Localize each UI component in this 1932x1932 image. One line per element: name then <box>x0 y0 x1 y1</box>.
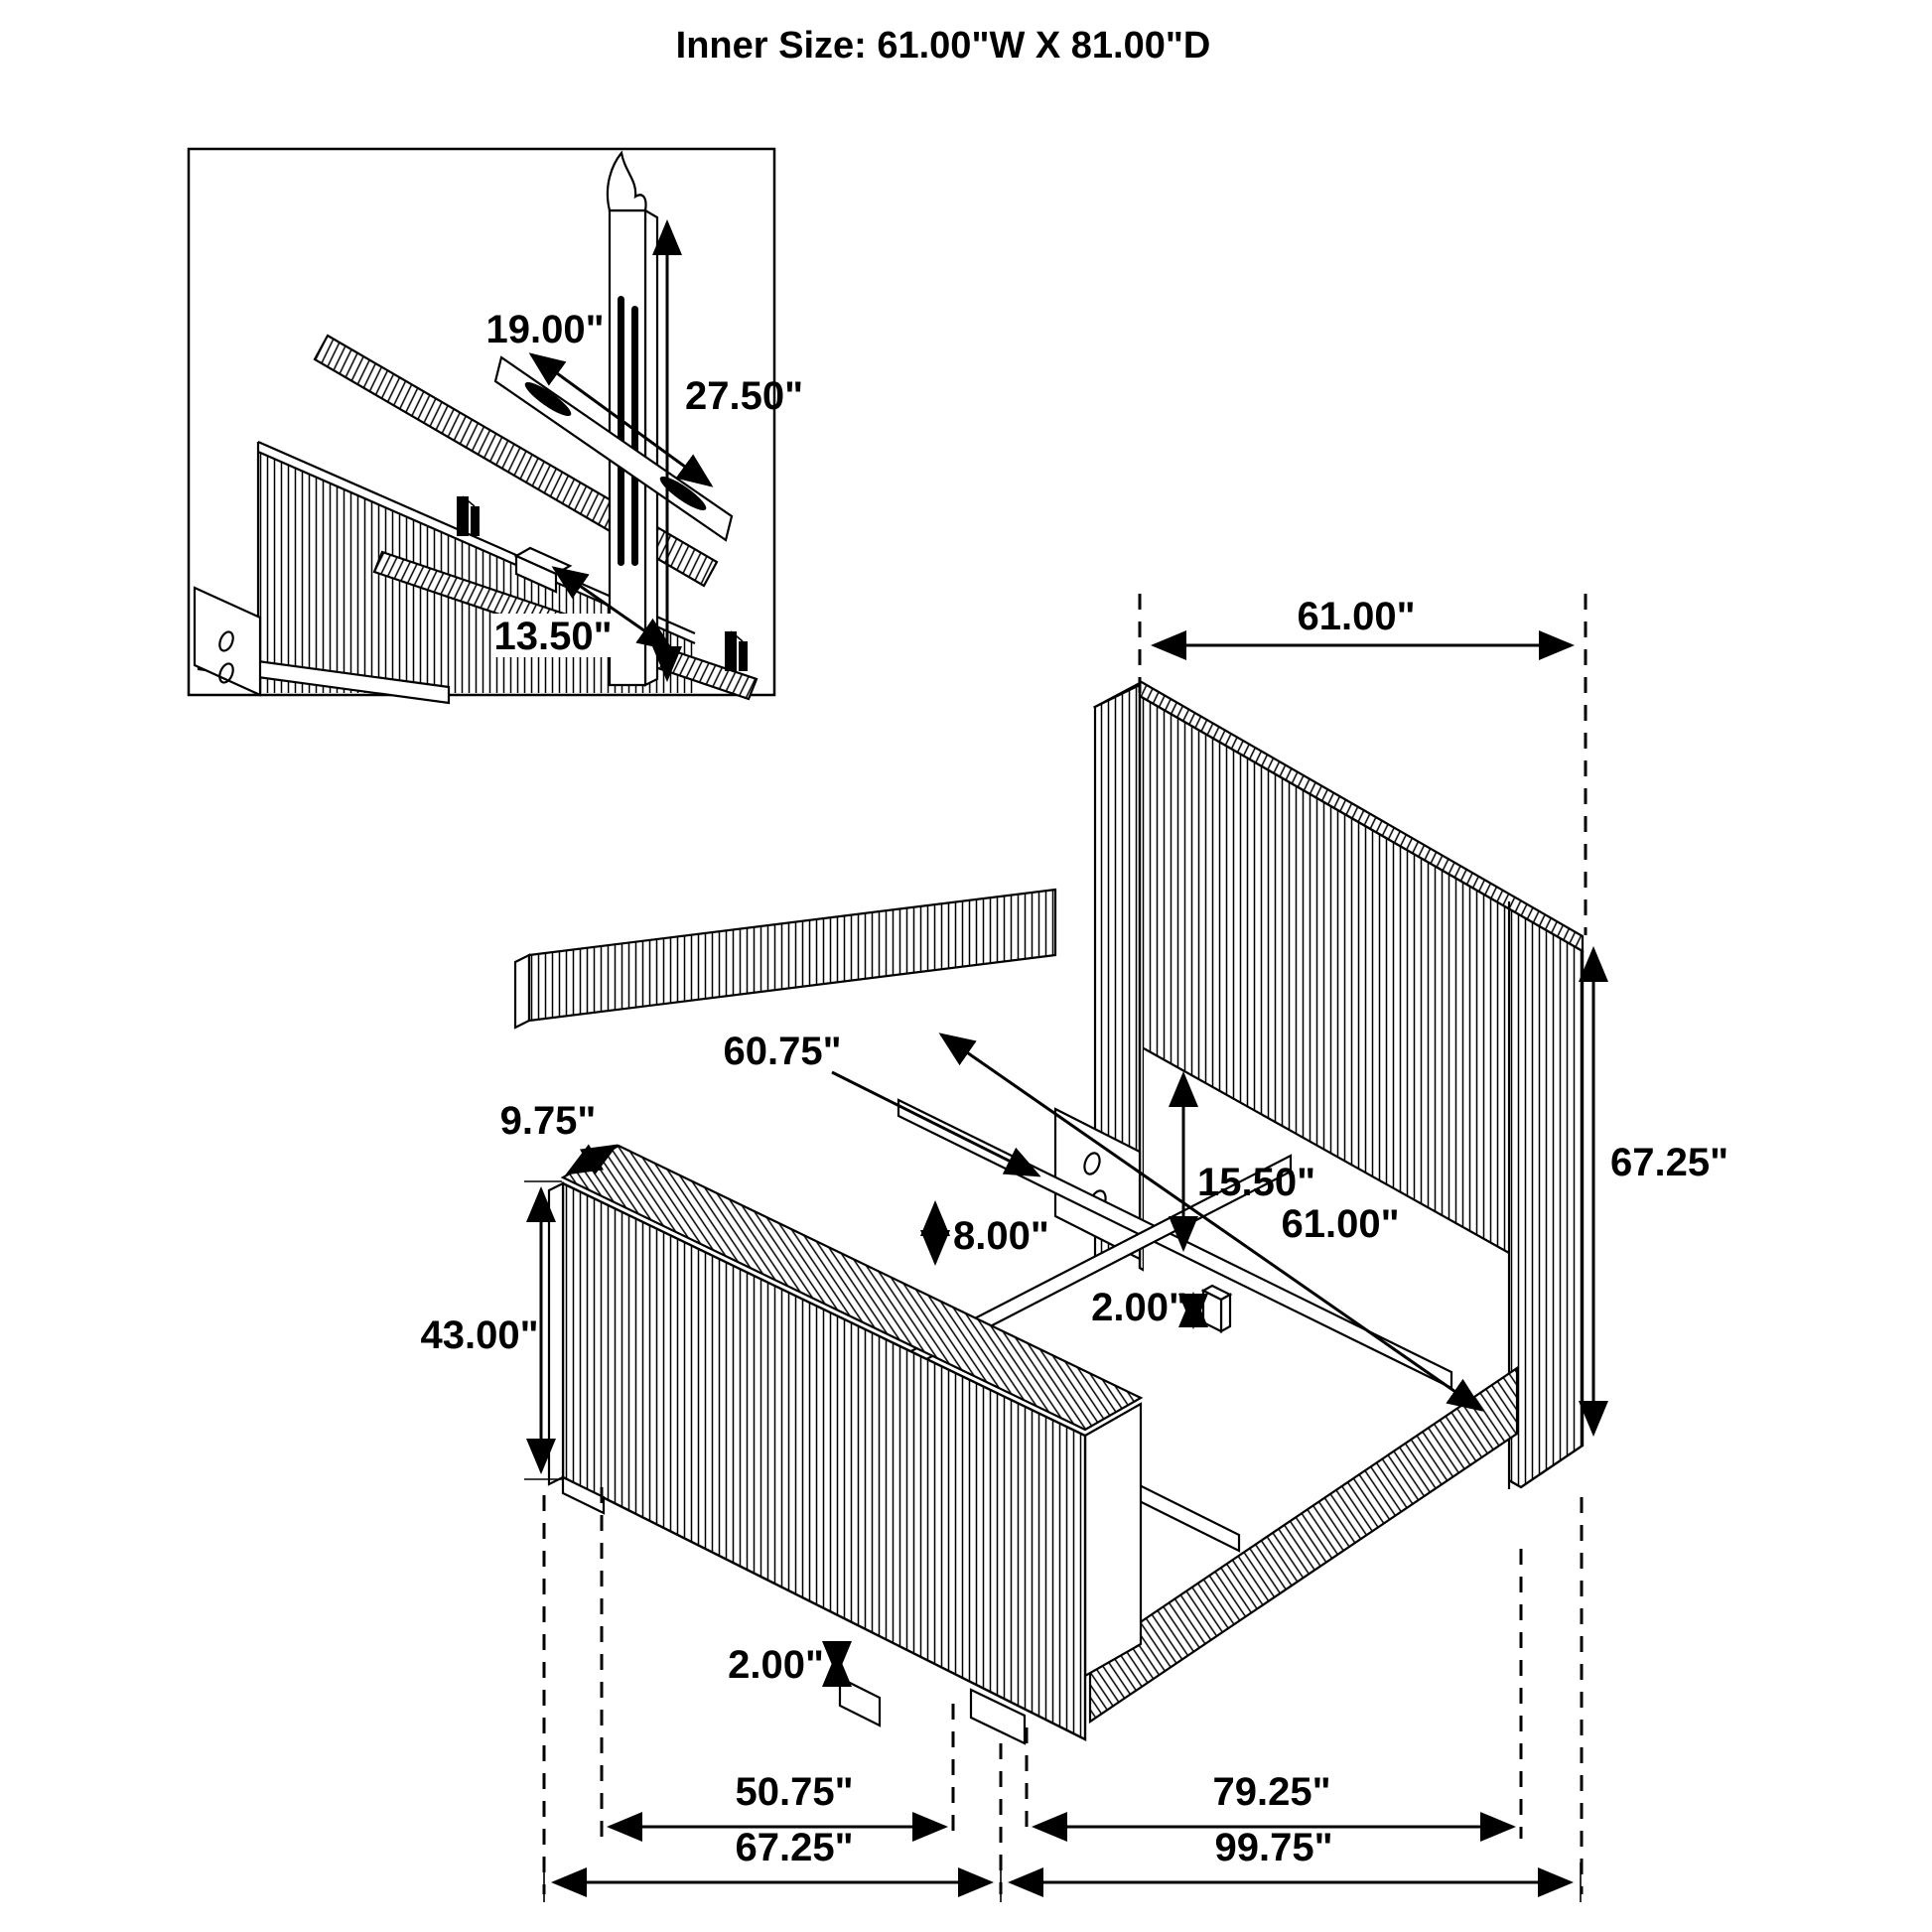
bed-dimension-diagram: Inner Size: 61.00"W X 81.00"D <box>0 0 1932 1932</box>
dim-label-rail-gap: 8.00" <box>953 1214 1049 1258</box>
bed-dimension-diagram-page: Inner Size: 61.00"W X 81.00"D <box>0 0 1932 1932</box>
footboard-center-leg <box>840 1678 880 1725</box>
dim-label-inner-width: 61.00" <box>1281 1202 1399 1246</box>
dim-label-slat-length: 60.75" <box>723 1030 841 1073</box>
dim-footboard-outer-width: 67.25" <box>544 1826 1581 1902</box>
dim-label-rail-length: 79.25" <box>1212 1770 1330 1814</box>
left-rail-end-cap <box>515 955 529 1028</box>
inset-detail-view: 19.00" 27.50" 13.50" <box>189 149 803 703</box>
left-rail-band <box>529 890 1055 1021</box>
tv-bracket-column-side <box>645 210 657 685</box>
dim-label-inner-foot: 50.75" <box>735 1770 853 1814</box>
footboard <box>549 1146 1141 1743</box>
bed-frame-isometric: 61.00" 67.25" 60.75" 9.75" 43.00" 15.50"… <box>420 594 1728 1902</box>
dim-label-headboard-height: 67.25" <box>1610 1141 1728 1184</box>
dim-label-27: 27.50" <box>685 374 803 418</box>
tv-bracket-slot <box>618 296 624 566</box>
dim-rail-length: 79.25" <box>1035 1770 1513 1827</box>
dim-headboard-height: 67.25" <box>1593 949 1728 1434</box>
dim-label-foot-leg: 2.00" <box>728 1643 824 1687</box>
dim-label-overall-length: 99.75" <box>1214 1826 1332 1869</box>
dim-footboard-inner-width: 50.75" <box>610 1770 945 1827</box>
dim-label-13: 13.50" <box>493 615 612 658</box>
dim-label-19: 19.00" <box>485 308 604 351</box>
dim-label-clearance: 15.50" <box>1197 1161 1315 1204</box>
dim-label-center-leg: 2.00" <box>1091 1286 1187 1329</box>
dim-center-leg-size: 2.00" <box>1091 1286 1193 1329</box>
center-support-leg <box>1203 1286 1230 1331</box>
left-side-rail <box>515 890 1055 1028</box>
tv-bracket-slot <box>631 306 638 566</box>
dim-foot-leg-height: 2.00" <box>728 1643 837 1687</box>
dim-overall-length: 99.75" <box>1011 1826 1571 1882</box>
dim-footboard-height: 43.00" <box>420 1181 562 1479</box>
dim-label-foot-outer: 67.25" <box>735 1826 853 1869</box>
dim-rail-slat-gap: 8.00" <box>935 1203 1049 1263</box>
dim-label-top-depth: 9.75" <box>500 1099 597 1143</box>
page-title: Inner Size: 61.00"W X 81.00"D <box>676 25 1211 67</box>
dim-label-footboard-height: 43.00" <box>420 1313 538 1357</box>
dim-label-top-width: 61.00" <box>1297 595 1415 638</box>
footboard-inner-face <box>1085 1404 1141 1676</box>
footboard-end-strip <box>549 1183 563 1484</box>
